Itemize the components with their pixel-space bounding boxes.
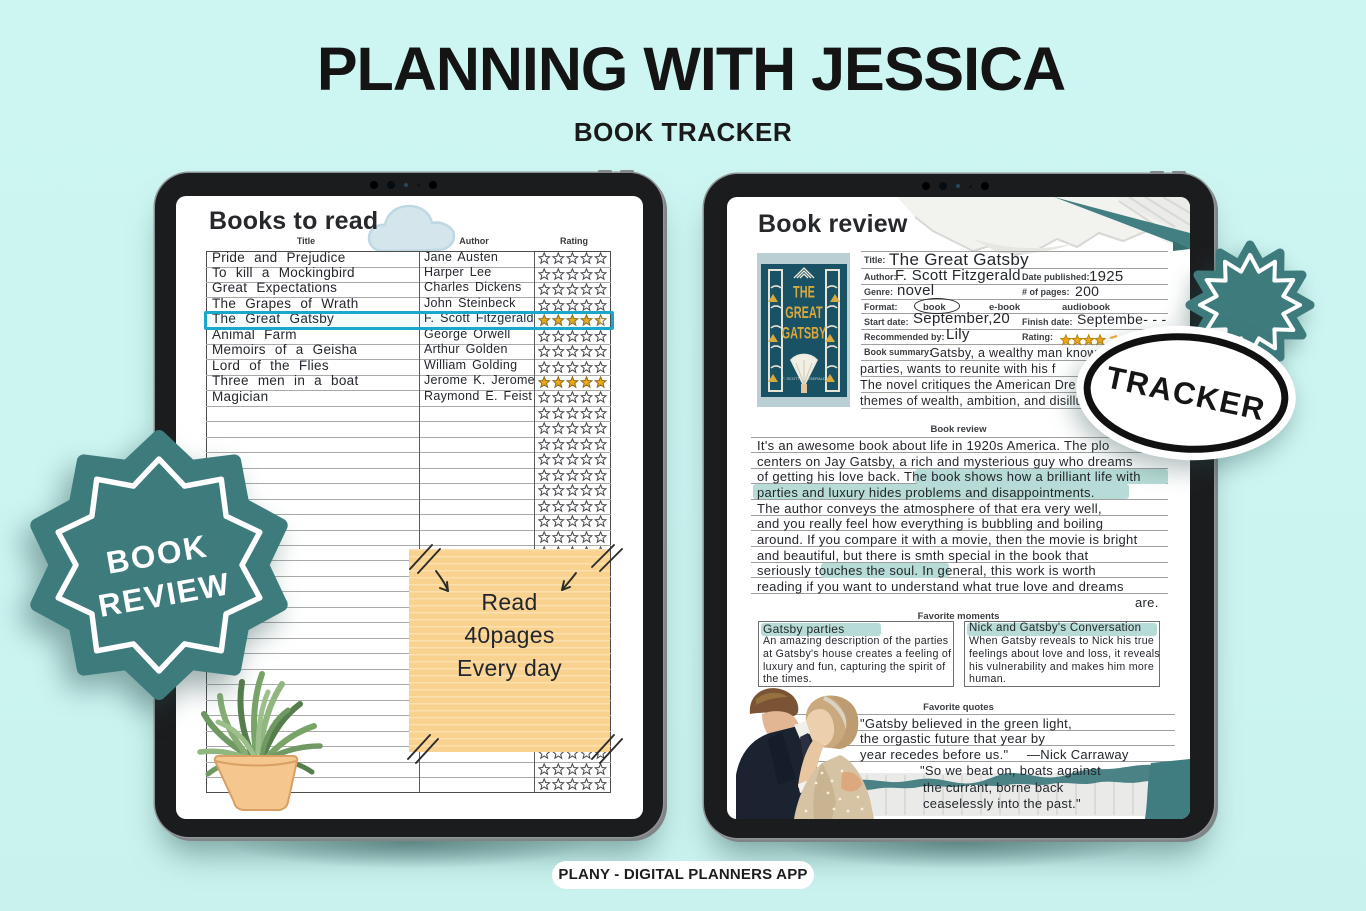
svg-text:THE: THE — [793, 283, 815, 302]
svg-text:GATSBY: GATSBY — [782, 324, 827, 343]
svg-text:F. SCOTT FITZGERALD: F. SCOTT FITZGERALD — [782, 376, 826, 381]
svg-text:GREAT: GREAT — [785, 304, 823, 323]
